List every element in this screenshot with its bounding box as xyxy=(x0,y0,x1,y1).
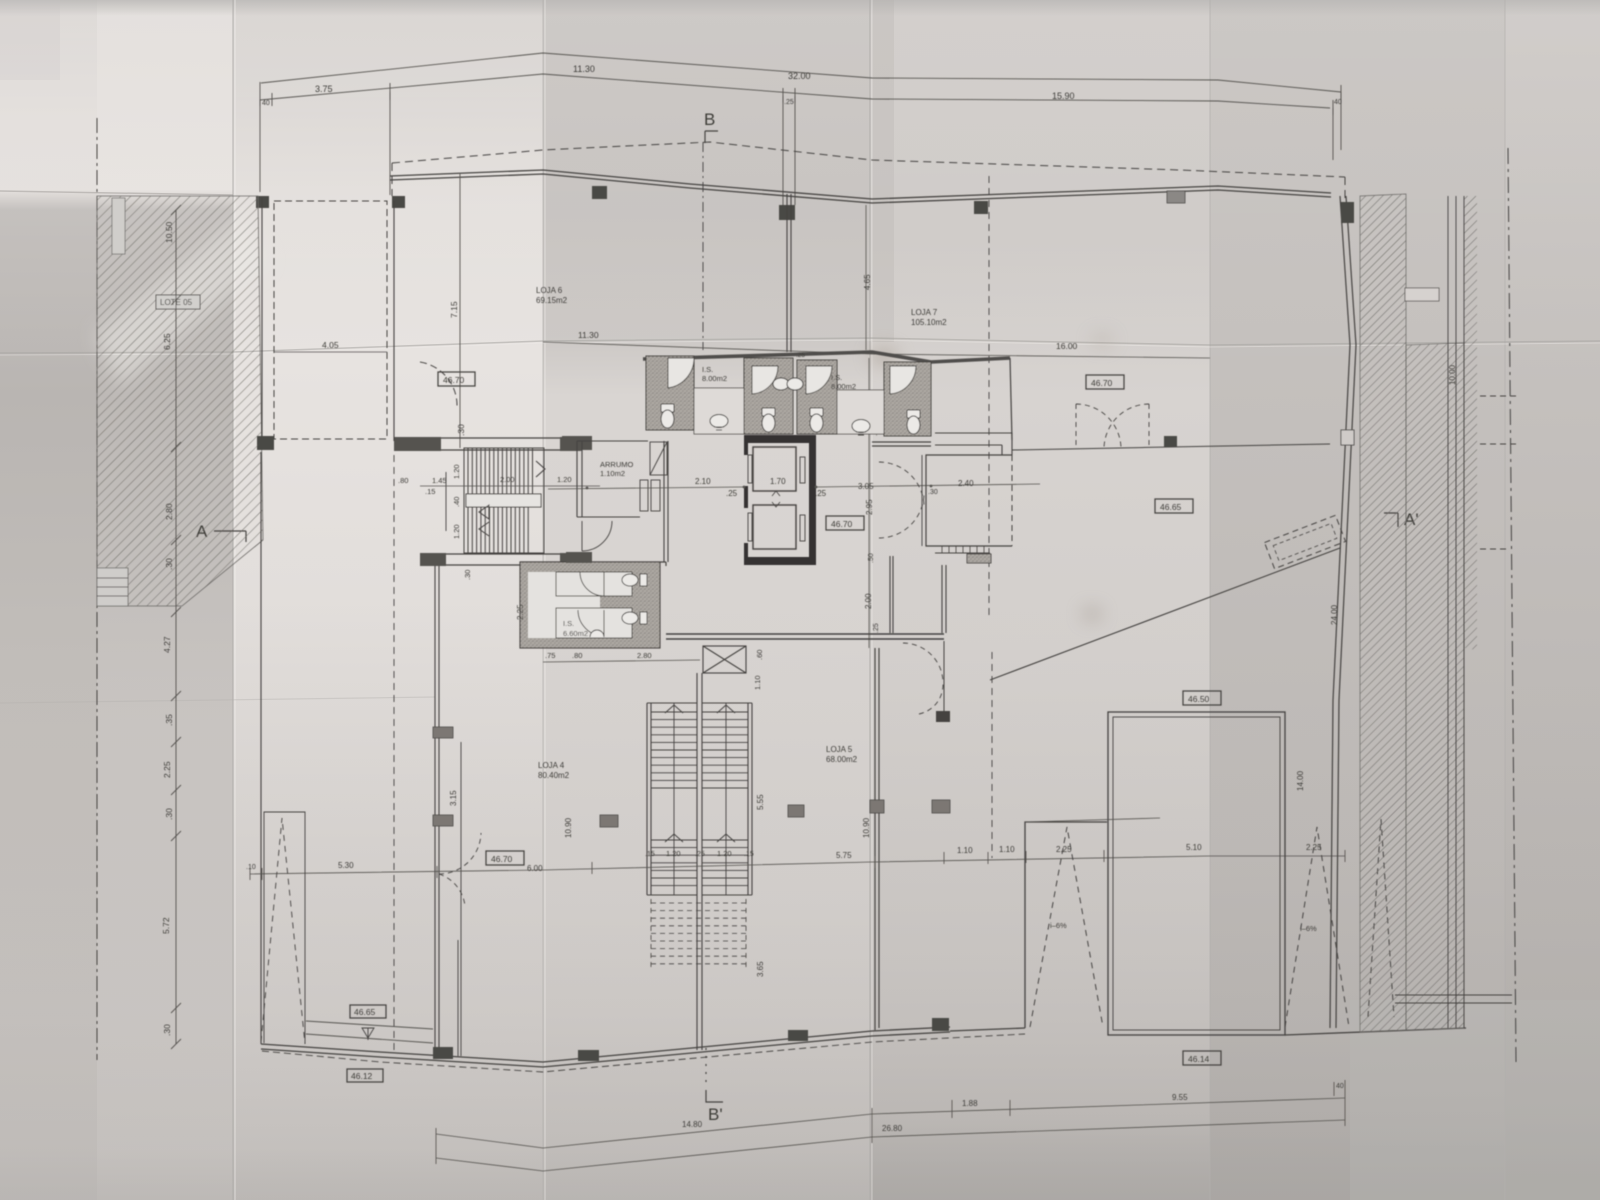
svg-text:40: 40 xyxy=(1334,99,1342,106)
svg-text:26.80: 26.80 xyxy=(882,1124,903,1133)
svg-text:ARRUMO: ARRUMO xyxy=(600,460,633,469)
svg-text:5.30: 5.30 xyxy=(338,861,354,870)
svg-text:8.00m2: 8.00m2 xyxy=(702,374,727,383)
svg-text:15.90: 15.90 xyxy=(1052,91,1075,101)
svg-text:.60: .60 xyxy=(755,650,764,660)
svg-text:7.15: 7.15 xyxy=(449,301,459,318)
svg-text:.25: .25 xyxy=(726,489,738,498)
svg-text:i–6%: i–6% xyxy=(1300,924,1317,933)
svg-text:2.25: 2.25 xyxy=(516,604,525,620)
svg-text:1.20: 1.20 xyxy=(666,849,681,858)
svg-text:I.S.: I.S. xyxy=(702,365,713,374)
svg-text:2.80: 2.80 xyxy=(164,503,174,520)
svg-text:46.65: 46.65 xyxy=(1160,502,1182,512)
svg-text:14.00: 14.00 xyxy=(1296,770,1305,791)
svg-text:LOJA 7: LOJA 7 xyxy=(911,308,938,317)
svg-text:5.55: 5.55 xyxy=(756,794,765,810)
svg-text:6.25: 6.25 xyxy=(162,333,172,350)
svg-text:1.10: 1.10 xyxy=(957,846,973,855)
svg-text:2.80: 2.80 xyxy=(637,651,652,660)
svg-text:40: 40 xyxy=(262,100,270,107)
svg-text:46.12: 46.12 xyxy=(351,1071,373,1081)
svg-text:5.75: 5.75 xyxy=(836,851,852,860)
svg-text:I.S.: I.S. xyxy=(563,619,574,628)
svg-text:.25: .25 xyxy=(873,623,880,633)
svg-text:.30: .30 xyxy=(463,570,472,580)
svg-text:.50: .50 xyxy=(868,553,875,563)
svg-text:B: B xyxy=(704,110,715,129)
svg-text:.30: .30 xyxy=(928,489,938,496)
svg-text:4.65: 4.65 xyxy=(863,274,872,290)
svg-text:5.72: 5.72 xyxy=(161,917,171,934)
svg-text:10.90: 10.90 xyxy=(564,817,573,838)
svg-text:2.25: 2.25 xyxy=(162,761,172,778)
svg-text:40: 40 xyxy=(1336,1083,1344,1090)
svg-text:3.65: 3.65 xyxy=(756,961,765,977)
svg-text:11.30: 11.30 xyxy=(573,64,595,74)
svg-text:.10: .10 xyxy=(246,864,256,871)
svg-text:46.70: 46.70 xyxy=(491,854,513,864)
svg-text:1.10: 1.10 xyxy=(999,845,1015,854)
svg-text:.30: .30 xyxy=(164,558,174,570)
svg-text:46.70: 46.70 xyxy=(443,375,465,385)
svg-text:B': B' xyxy=(708,1105,723,1124)
svg-text:.25: .25 xyxy=(815,489,827,498)
svg-text:46.70: 46.70 xyxy=(1091,378,1113,388)
svg-text:.25: .25 xyxy=(796,352,805,359)
svg-text:6.00: 6.00 xyxy=(527,864,543,873)
svg-text:i–6%: i–6% xyxy=(1050,921,1067,930)
svg-text:2.00: 2.00 xyxy=(500,475,515,484)
svg-text:5.10: 5.10 xyxy=(1186,843,1202,852)
svg-text:2.40: 2.40 xyxy=(958,479,974,488)
svg-text:1.20: 1.20 xyxy=(717,849,732,858)
svg-text:46.14: 46.14 xyxy=(1188,1054,1210,1064)
svg-text:4.27: 4.27 xyxy=(162,636,172,653)
svg-text:.30: .30 xyxy=(162,1024,172,1036)
svg-text:LOJA 5: LOJA 5 xyxy=(826,745,853,754)
svg-text:.15: .15 xyxy=(645,851,655,858)
svg-text:.80: .80 xyxy=(398,476,408,485)
svg-text:24.00: 24.00 xyxy=(1330,604,1339,625)
svg-text:46.50: 46.50 xyxy=(1188,694,1210,704)
svg-text:10.90: 10.90 xyxy=(862,817,871,838)
svg-text:3.15: 3.15 xyxy=(449,790,458,806)
svg-text:105.10m2: 105.10m2 xyxy=(911,318,947,327)
svg-text:.30: .30 xyxy=(456,424,466,436)
svg-text:16.00: 16.00 xyxy=(1056,341,1078,351)
svg-text:14.80: 14.80 xyxy=(682,1120,703,1129)
svg-text:2.00: 2.00 xyxy=(864,593,873,609)
svg-text:.25: .25 xyxy=(695,851,705,858)
svg-text:1.20: 1.20 xyxy=(557,475,572,484)
svg-text:.35: .35 xyxy=(164,714,174,726)
svg-text:46.70: 46.70 xyxy=(831,519,853,529)
svg-text:.80: .80 xyxy=(572,651,582,660)
svg-text:8.00m2: 8.00m2 xyxy=(831,382,856,391)
svg-text:.30: .30 xyxy=(164,808,174,820)
svg-text:4.05: 4.05 xyxy=(322,340,339,350)
svg-text:.75: .75 xyxy=(545,651,555,660)
svg-text:.15: .15 xyxy=(425,487,435,496)
svg-text:.15: .15 xyxy=(744,851,754,858)
svg-text:9.55: 9.55 xyxy=(1172,1093,1188,1102)
svg-text:80.40m2: 80.40m2 xyxy=(538,771,570,780)
svg-text:6.60m2: 6.60m2 xyxy=(563,629,588,638)
svg-text:LOJA 4: LOJA 4 xyxy=(538,761,565,770)
svg-text:69.15m2: 69.15m2 xyxy=(536,296,568,305)
svg-text:I.S.: I.S. xyxy=(831,373,842,382)
svg-text:1.10m2: 1.10m2 xyxy=(600,469,625,478)
svg-text:11.30: 11.30 xyxy=(578,330,599,340)
svg-text:LOJA 6: LOJA 6 xyxy=(536,286,563,295)
svg-text:10.50: 10.50 xyxy=(164,221,174,243)
svg-text:.25: .25 xyxy=(784,99,794,106)
svg-text:2.25: 2.25 xyxy=(1056,845,1072,854)
svg-text:3.05: 3.05 xyxy=(858,482,874,491)
svg-text:3.75: 3.75 xyxy=(315,84,333,94)
svg-text:2.95: 2.95 xyxy=(865,499,874,515)
svg-text:1.45: 1.45 xyxy=(432,476,447,485)
svg-text:1.20: 1.20 xyxy=(452,464,461,479)
svg-text:46.65: 46.65 xyxy=(354,1007,376,1017)
svg-text:1.88: 1.88 xyxy=(962,1099,978,1108)
svg-text:2.10: 2.10 xyxy=(695,477,711,486)
svg-text:68.00m2: 68.00m2 xyxy=(826,755,858,764)
svg-text:10.00: 10.00 xyxy=(1448,364,1457,385)
svg-text:1.20: 1.20 xyxy=(452,524,461,539)
svg-text:.40: .40 xyxy=(452,497,461,507)
svg-text:1.10: 1.10 xyxy=(753,675,762,690)
svg-text:1.70: 1.70 xyxy=(770,477,786,486)
svg-text:32.00: 32.00 xyxy=(788,71,811,81)
